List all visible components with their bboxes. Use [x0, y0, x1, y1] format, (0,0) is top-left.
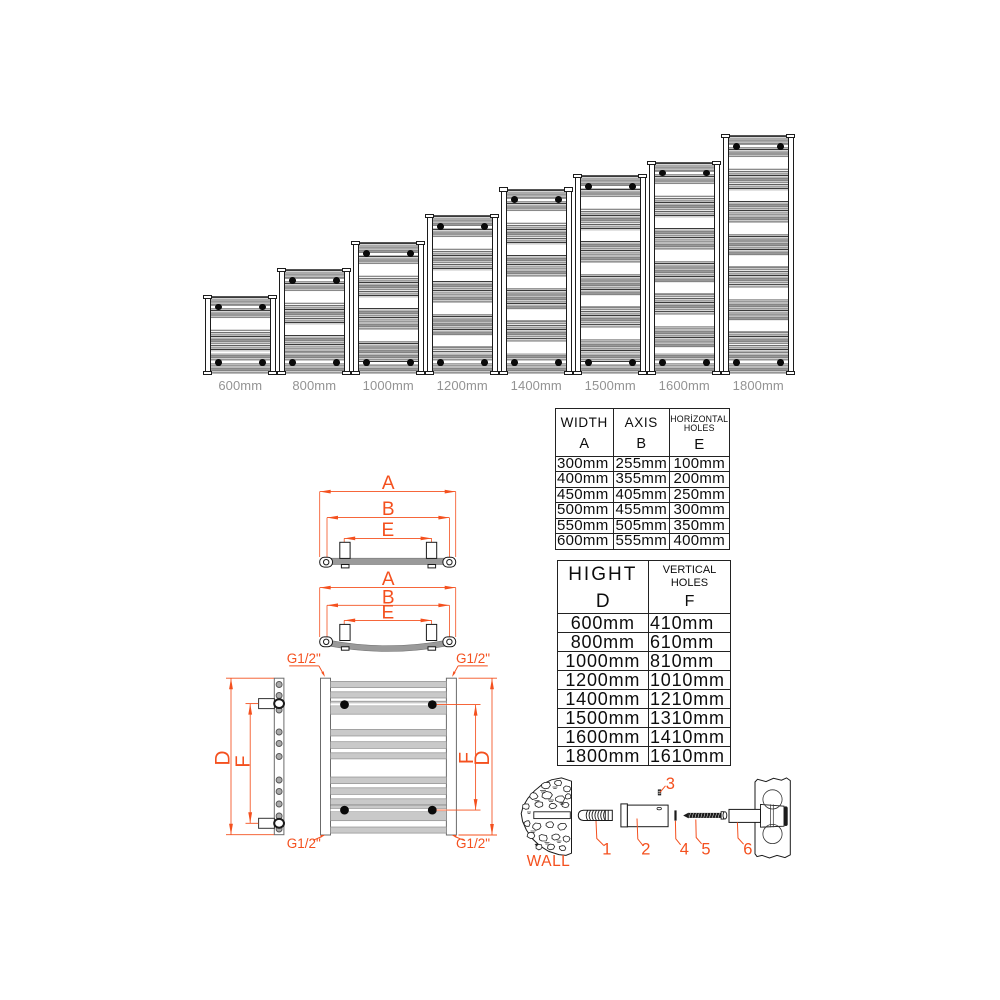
svg-text:G1/2": G1/2"	[456, 651, 490, 666]
svg-text:G1/2": G1/2"	[287, 836, 321, 851]
svg-text:A: A	[382, 473, 395, 494]
svg-text:6: 6	[743, 841, 752, 859]
svg-text:B: B	[382, 499, 395, 520]
svg-text:3: 3	[666, 775, 675, 793]
svg-text:E: E	[381, 602, 394, 623]
svg-text:G1/2": G1/2"	[287, 651, 321, 666]
svg-text:1: 1	[602, 841, 611, 859]
svg-text:G1/2": G1/2"	[456, 836, 490, 851]
svg-text:E: E	[381, 520, 394, 541]
svg-text:D: D	[471, 750, 494, 765]
svg-text:WALL: WALL	[527, 853, 571, 870]
svg-text:F: F	[232, 755, 254, 767]
svg-text:D: D	[212, 750, 235, 765]
svg-text:2: 2	[641, 841, 650, 859]
svg-text:4: 4	[680, 841, 689, 859]
svg-text:5: 5	[701, 841, 710, 859]
